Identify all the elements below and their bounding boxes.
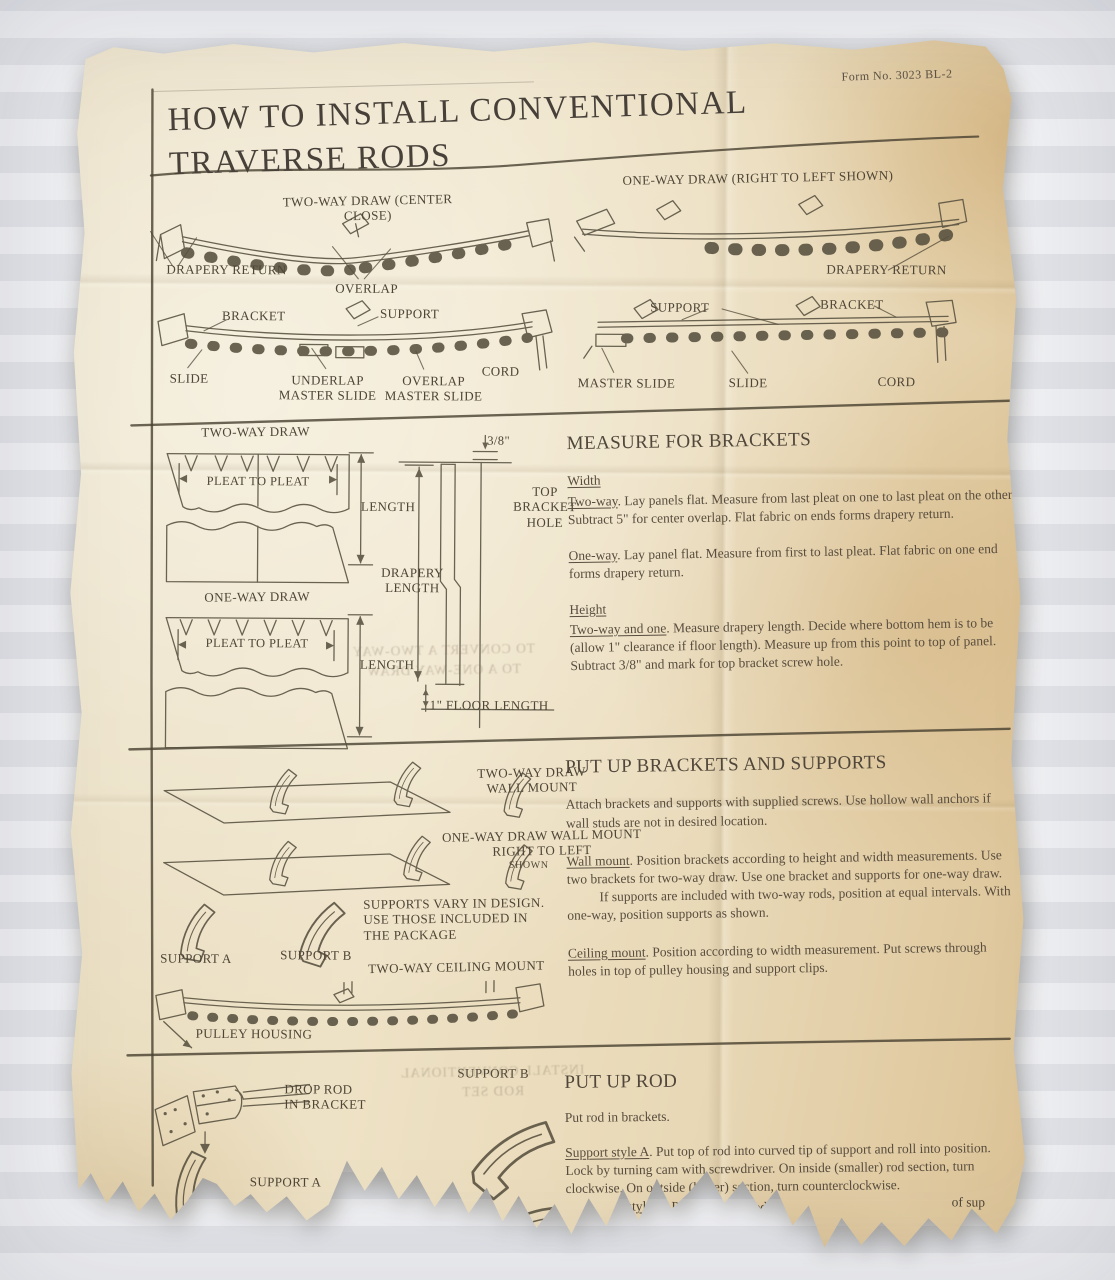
- floor-length-label: 1" FLOOR LENGTH: [430, 697, 549, 713]
- brackets-paragraph-ceiling: Ceiling mount. Position according to wid…: [568, 938, 1016, 981]
- one-way-rod-drapery-diagram: [570, 191, 971, 293]
- label-bracket: BRACKET: [222, 308, 286, 324]
- support-a-label-2: SUPPORT A: [250, 1174, 322, 1190]
- support-a-piece-diagram: [152, 1142, 222, 1217]
- rod-paragraph-intro: Put rod in brackets.: [565, 1104, 1013, 1127]
- label-drapery-return: DRAPERY RETURN: [166, 262, 286, 278]
- measure-for-brackets-text: MEASURE FOR BRACKETS Width Two-way. Lay …: [567, 424, 1019, 689]
- height-label: Height: [569, 601, 606, 617]
- pleat-to-pleat-label-1: PLEAT TO PLEAT: [191, 474, 325, 490]
- label-drapery-return-right: DRAPERY RETURN: [826, 262, 946, 278]
- rod-fragment-until: d until it sna: [628, 1222, 695, 1238]
- rod-heading: PUT UP ROD: [564, 1065, 1012, 1096]
- supports-vary-caption: SUPPORTS VARY IN DESIGN. USE THOSE INCLU…: [363, 894, 599, 943]
- bleed-through-text-1: TO CONVERT A TWO-WAY TO A ONE-WAY DRAW: [326, 638, 562, 683]
- one-way-rod-mechanism-diagram: [570, 296, 970, 376]
- label-overlap-master-slide: OVERLAP MASTER SLIDE: [374, 373, 494, 404]
- ceiling-mount-diagram: [148, 974, 549, 1061]
- label-cord: CORD: [482, 364, 520, 380]
- page-title: HOW TO INSTALL CONVENTIONAL TRAVERSE ROD…: [167, 81, 750, 187]
- rod-paragraph-style-a: Support style A. Put top of rod into cur…: [565, 1138, 1014, 1197]
- rod-fragment-ction: ction: [646, 1245, 673, 1261]
- three-eighths-label: 3/8": [487, 434, 510, 449]
- measure-paragraph-one-way: One-way. Lay panel flat. Measure from fi…: [568, 539, 1017, 583]
- instruction-sheet-paper: HOW TO INSTALL CONVENTIONAL TRAVERSE ROD…: [66, 33, 1049, 1277]
- one-way-pleat-diagram: [161, 606, 352, 752]
- measure-two-way-caption: TWO-WAY DRAW: [201, 424, 310, 441]
- label-support: SUPPORT: [380, 306, 439, 322]
- width-label: Width: [567, 473, 600, 489]
- bleed-through-text-2: INSTALL CONVENTIONAL ROD SET: [367, 1059, 618, 1105]
- pulley-housing-label: PULLEY HOUSING: [196, 1026, 313, 1042]
- label-underlap-master-slide: UNDERLAP MASTER SLIDE: [268, 372, 388, 403]
- support-a-label: SUPPORT A: [160, 951, 232, 967]
- label-slide-right: SLIDE: [729, 375, 768, 391]
- two-way-wall-mount-diagram: [152, 761, 462, 833]
- put-up-rod-text: PUT UP ROD Put rod in brackets. Support …: [564, 1065, 1014, 1211]
- brackets-paragraph-intro: Attach brackets and supports with suppli…: [566, 790, 1014, 833]
- brackets-paragraph-supports: If supports are included with two-way ro…: [567, 882, 1015, 925]
- measure-paragraph-two-way: Two-way. Lay panels flat. Measure from l…: [568, 485, 1017, 529]
- support-b-label: SUPPORT B: [280, 947, 352, 963]
- put-up-brackets-text: PUT UP BRACKETS AND SUPPORTS Attach brac…: [565, 748, 1016, 994]
- drop-rod-label: DROP ROD IN BRACKET: [284, 1081, 366, 1112]
- brackets-heading: PUT UP BRACKETS AND SUPPORTS: [565, 748, 1013, 780]
- drapery-length-label: DRAPERY LENGTH: [370, 565, 454, 596]
- measure-paragraph-height: Two-way and one. Measure drapery length.…: [570, 614, 1019, 676]
- support-a-diagram: [160, 892, 230, 956]
- label-bracket-right: BRACKET: [820, 297, 884, 313]
- rod-fragment-style-b: t style B. Put bottom of rod in: [620, 1198, 781, 1215]
- two-way-pleat-diagram: [162, 442, 353, 588]
- measure-one-way-caption: ONE-WAY DRAW: [204, 589, 310, 606]
- rod-fragment-of-sup: of sup: [952, 1194, 985, 1210]
- support-b-piece-lower-diagram: [468, 1170, 554, 1256]
- form-number: Form No. 3023 BL-2: [841, 66, 952, 84]
- label-cord-right: CORD: [878, 374, 916, 390]
- label-slide: SLIDE: [170, 371, 209, 387]
- label-support-right: SUPPORT: [650, 300, 709, 316]
- label-overlap: OVERLAP: [335, 281, 398, 297]
- pleat-to-pleat-label-2: PLEAT TO PLEAT: [190, 636, 324, 652]
- label-master-slide: MASTER SLIDE: [578, 375, 676, 391]
